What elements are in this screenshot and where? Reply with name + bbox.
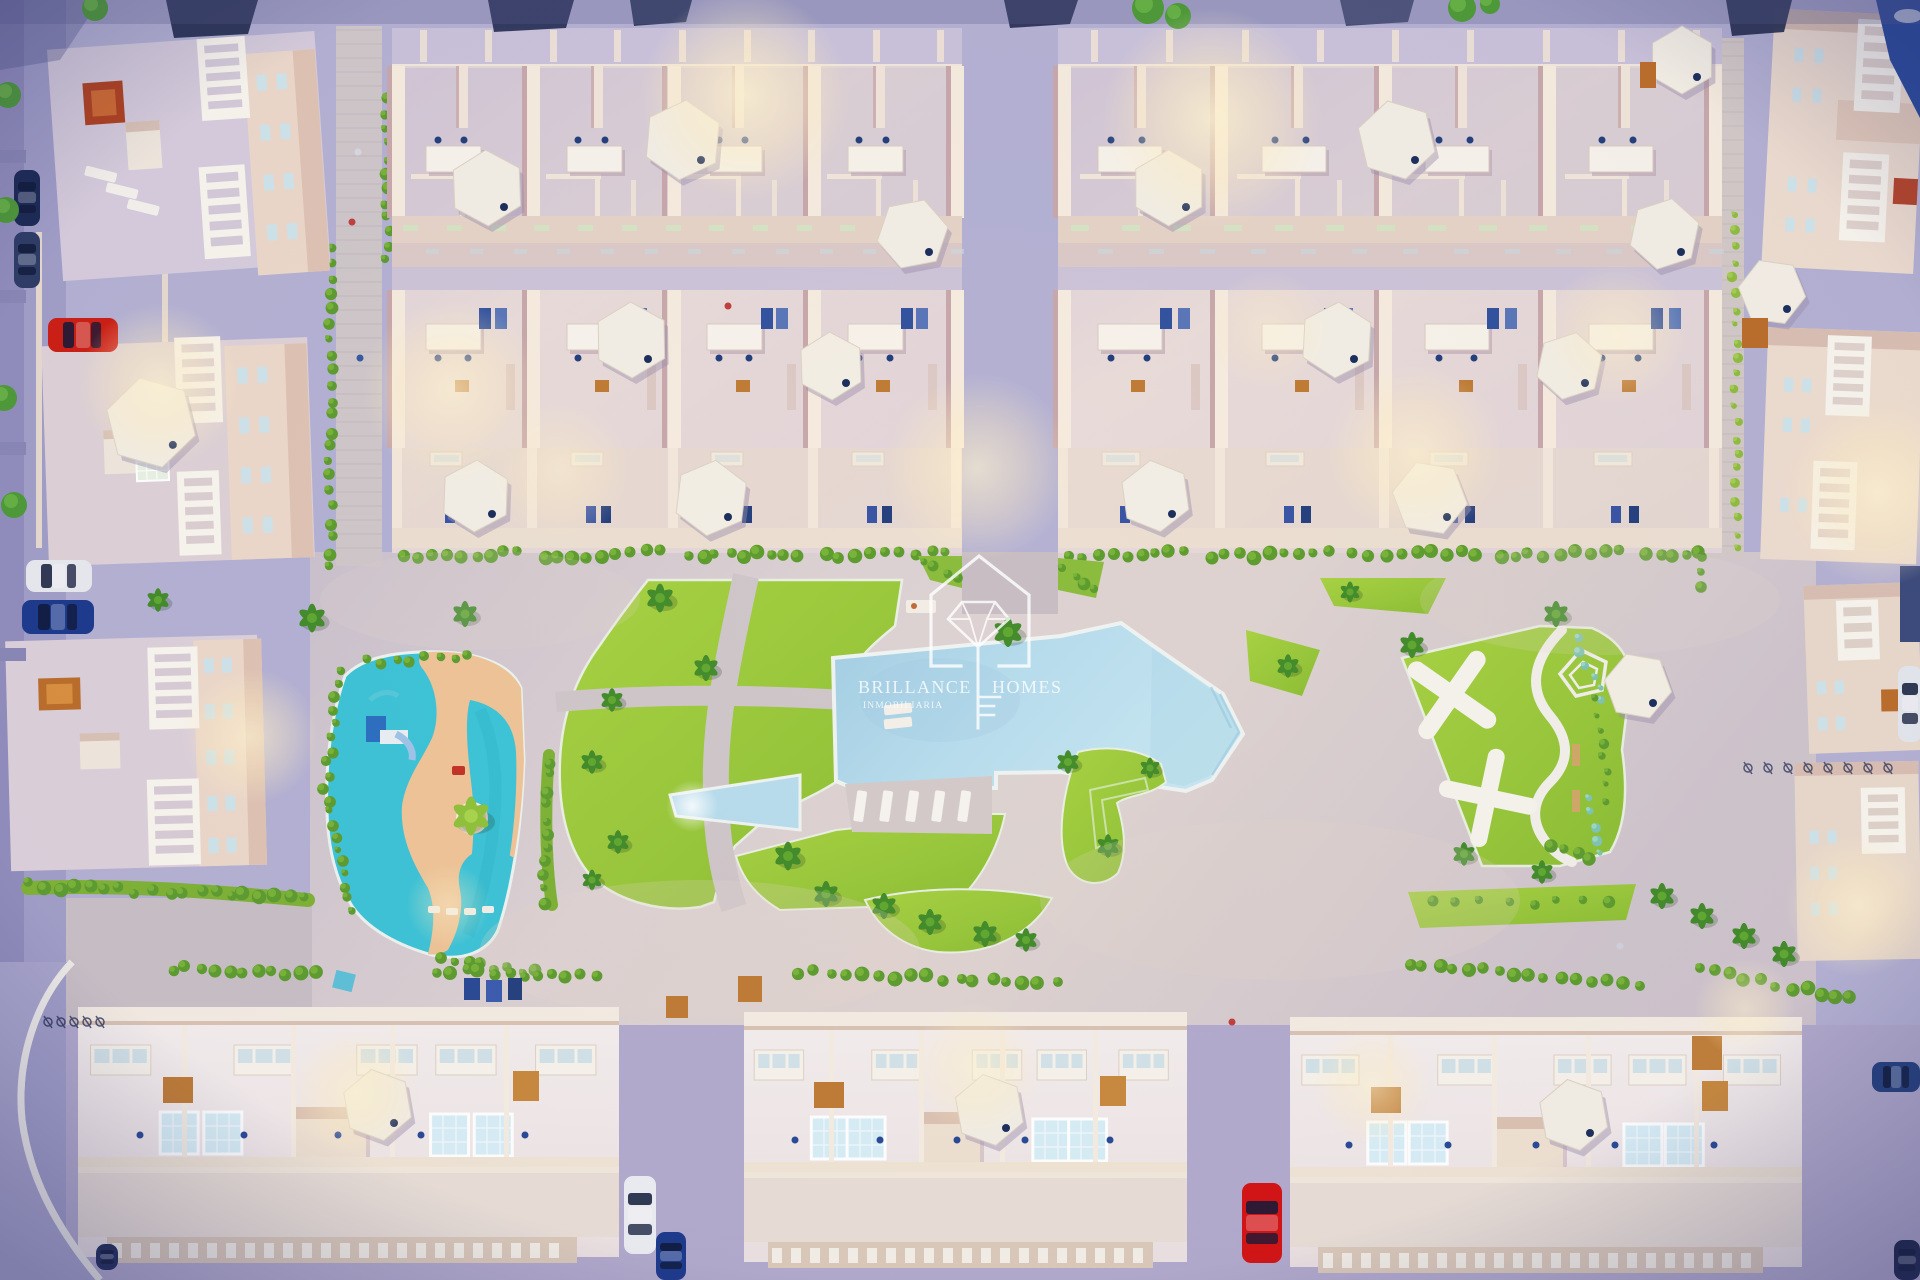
svg-text:INMOBILIARIA: INMOBILIARIA: [863, 701, 943, 711]
svg-text:BRILLANCE: BRILLANCE: [858, 677, 972, 697]
svg-text:HOMES: HOMES: [992, 677, 1063, 697]
